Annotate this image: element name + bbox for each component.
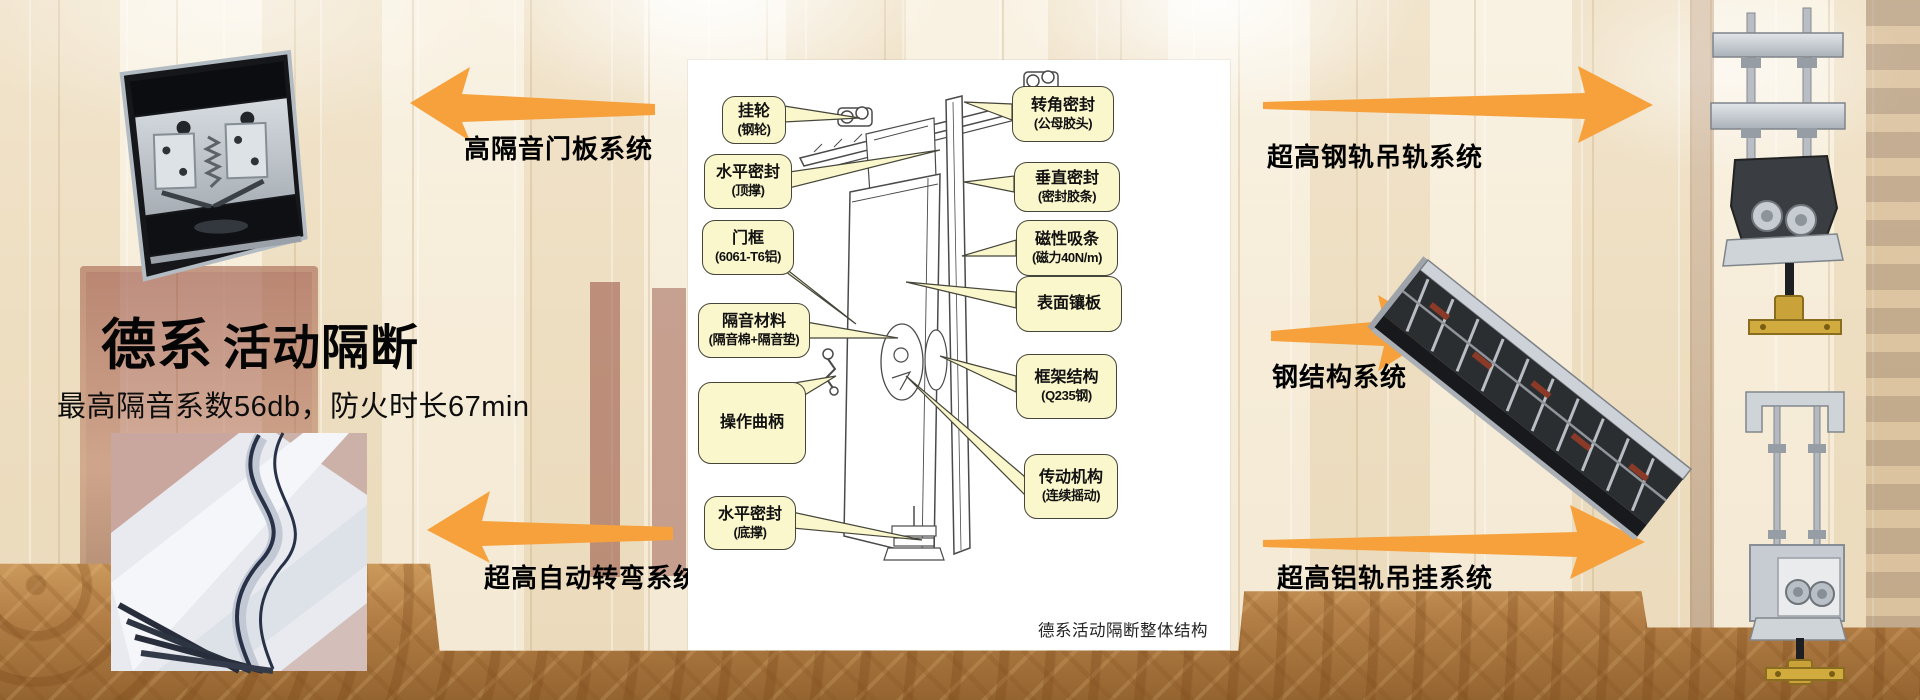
callout-subtext: (连续摇动) (1042, 488, 1100, 503)
steel-rail-hanger-photo (1705, 8, 1860, 338)
callout-subtext: (底撑) (733, 525, 766, 540)
callout-subtext: (钢轮) (737, 122, 770, 137)
curved-track-photo (111, 433, 367, 671)
callout-sound-insulation: 隔音材料 (隔音棉+隔音垫) (698, 303, 810, 358)
callout-corner-seal: 转角密封 (公母胶头) (1012, 86, 1114, 142)
callout-text: 传动机构 (1039, 469, 1103, 488)
label-door-panel-system: 高隔音门板系统 (464, 129, 653, 166)
callout-subtext: (公母胶头) (1034, 116, 1092, 131)
callout-text: 挂轮 (738, 103, 770, 122)
callout-subtext: (6061-T6铝) (715, 249, 781, 264)
label-steel-structure-system: 钢结构系统 (1272, 357, 1407, 394)
diagram-caption: 德系活动隔断整体结构 (1038, 617, 1208, 641)
callout-horizontal-seal-bottom: 水平密封 (底撑) (704, 496, 796, 550)
callout-text: 垂直密封 (1035, 170, 1099, 189)
title-subtitle: 最高隔音系数56db，防火时长67min (57, 383, 530, 425)
callout-hanger-wheel: 挂轮 (钢轮) (722, 96, 786, 144)
callout-surface-panel: 表面镶板 (1016, 276, 1122, 332)
callout-horizontal-seal-top: 水平密封 (顶撑) (704, 154, 792, 209)
callout-text: 转角密封 (1031, 97, 1095, 116)
callout-subtext: (顶撑) (731, 183, 764, 198)
structure-diagram-panel: 挂轮 (钢轮) 水平密封 (顶撑) 门框 (6061-T6铝) 隔音材料 (隔音… (688, 60, 1230, 650)
title-brand: 德系 (101, 314, 213, 376)
callout-text: 表面镶板 (1037, 295, 1101, 314)
label-aluminum-rail-system: 超高铝轨吊挂系统 (1277, 558, 1493, 595)
callout-subtext: (Q235钢) (1041, 388, 1092, 403)
label-auto-turn-system: 超高自动转弯系统 (484, 558, 700, 595)
callout-text: 水平密封 (716, 164, 780, 183)
aluminum-rail-hanger-photo (1732, 380, 1862, 682)
callout-transmission: 传动机构 (连续摇动) (1024, 454, 1118, 519)
callout-text: 框架结构 (1034, 369, 1098, 388)
steel-structure-photo (1418, 228, 1720, 473)
callout-text: 水平密封 (718, 506, 782, 525)
callout-frame-structure: 框架结构 (Q235钢) (1016, 354, 1117, 419)
callout-subtext: (隔音棉+隔音垫) (709, 332, 800, 347)
callout-text: 操作曲柄 (720, 414, 784, 433)
background-red-strip-1 (590, 282, 620, 577)
callout-operating-crank: 操作曲柄 (698, 382, 806, 464)
callout-subtext: (磁力40N/m) (1032, 250, 1102, 265)
slide-stage: 德系活动隔断 最高隔音系数56db，防火时长67min 高隔音门板系统 超高自动… (0, 0, 1920, 700)
label-steel-rail-system: 超高钢轨吊轨系统 (1267, 137, 1483, 174)
callout-door-frame: 门框 (6061-T6铝) (702, 220, 794, 275)
background-red-strip-2 (652, 288, 686, 576)
door-panel-mechanism-photo (93, 41, 323, 294)
callout-vertical-seal: 垂直密封 (密封胶条) (1014, 162, 1120, 212)
callout-magnetic-strip: 磁性吸条 (磁力40N/m) (1016, 220, 1118, 276)
callout-text: 隔音材料 (722, 313, 786, 332)
page-title: 德系活动隔断 (90, 300, 430, 380)
callout-text: 磁性吸条 (1035, 231, 1099, 250)
callout-text: 门框 (732, 230, 764, 249)
callout-subtext: (密封胶条) (1038, 189, 1096, 204)
title-product: 活动隔断 (223, 322, 419, 375)
background-right-band-2 (1866, 0, 1920, 700)
